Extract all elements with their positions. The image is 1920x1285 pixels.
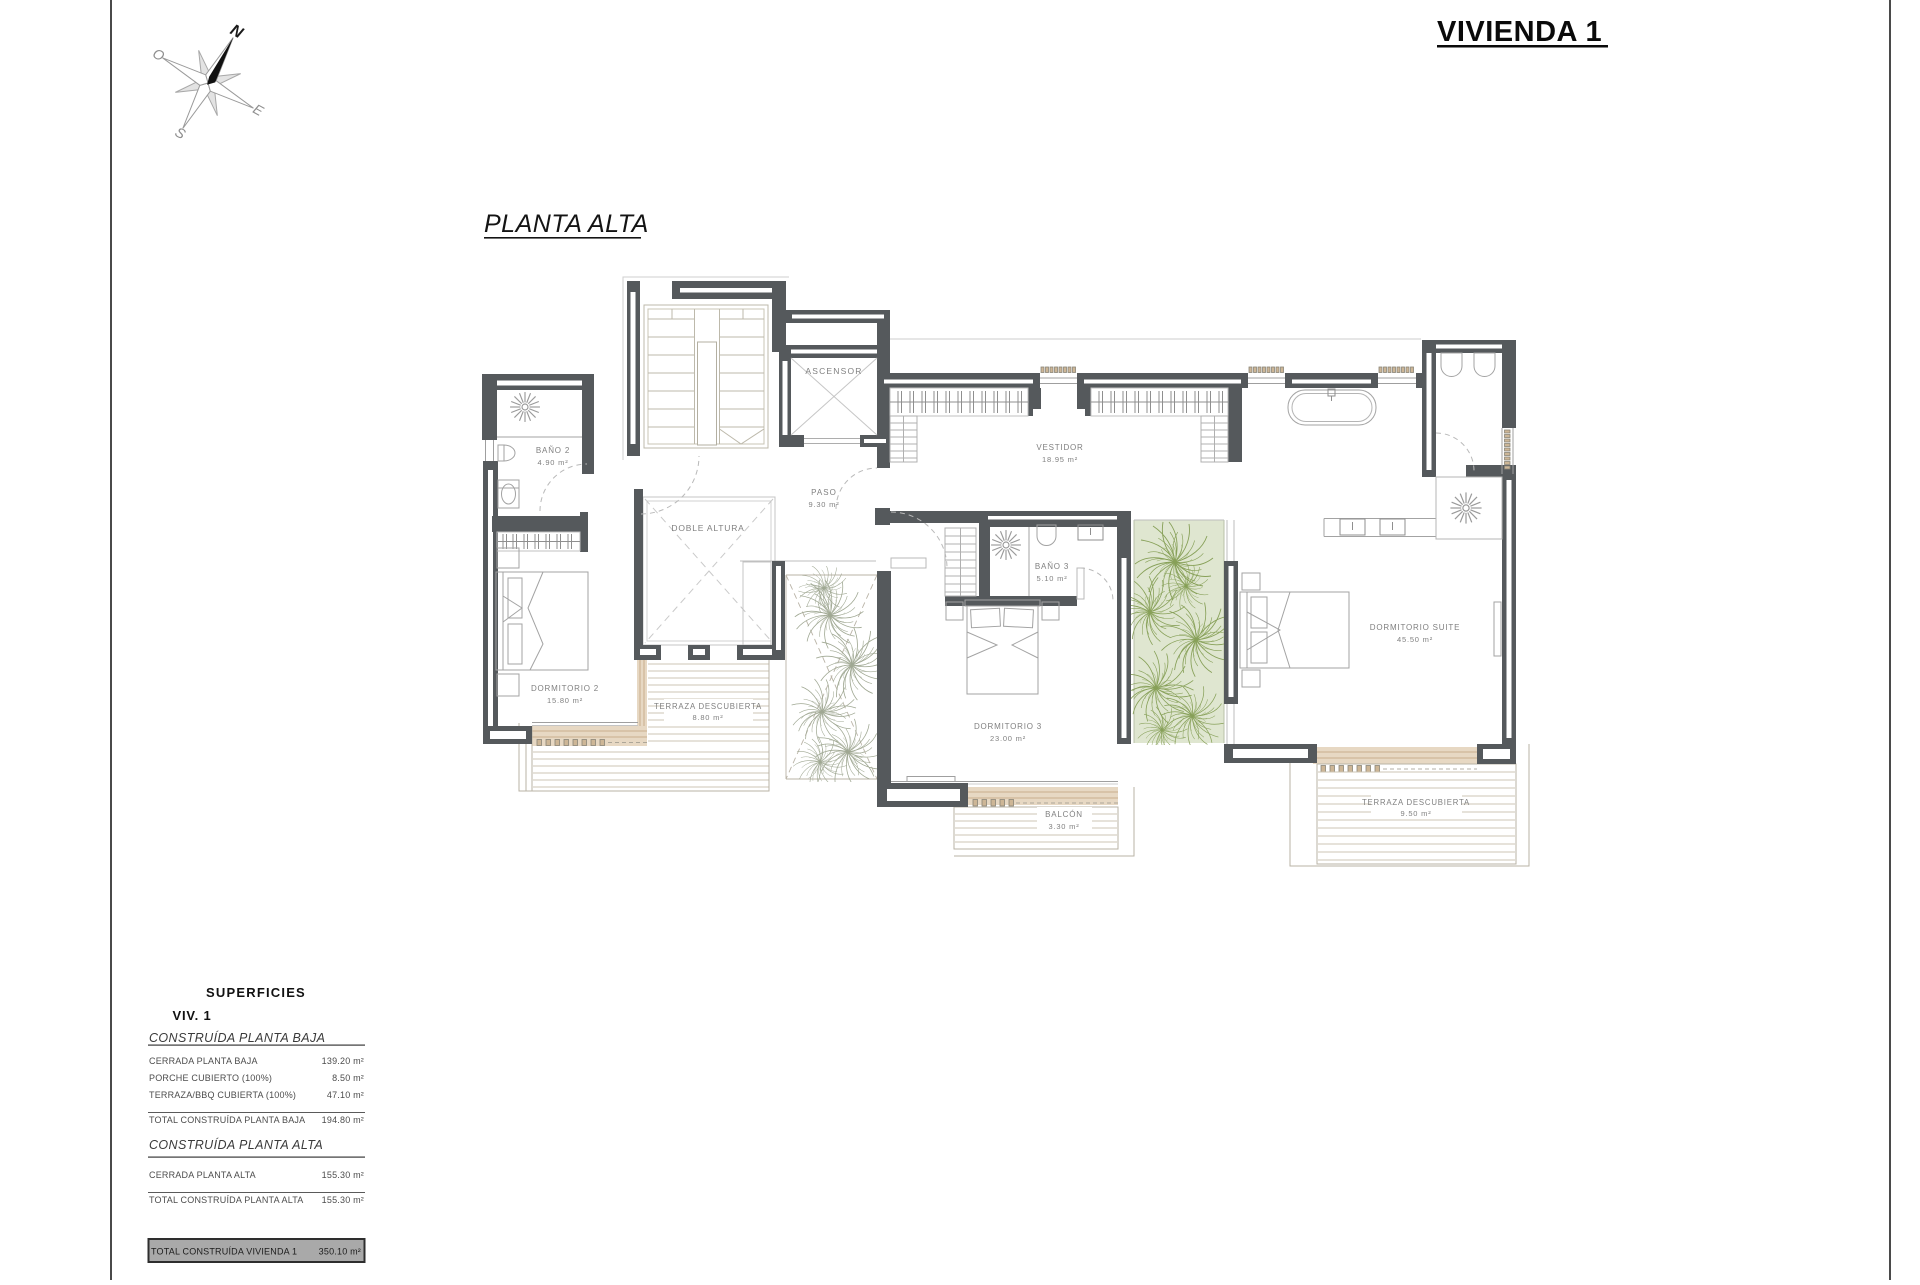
svg-text:5.10 m²: 5.10 m² bbox=[1036, 574, 1067, 583]
svg-text:DORMITORIO SUITE: DORMITORIO SUITE bbox=[1370, 623, 1460, 632]
svg-text:9.50 m²: 9.50 m² bbox=[1400, 809, 1431, 818]
svg-text:PLANTA ALTA: PLANTA ALTA bbox=[484, 210, 649, 238]
svg-text:18.95 m²: 18.95 m² bbox=[1042, 455, 1078, 464]
svg-text:TERRAZA DESCUBIERTA: TERRAZA DESCUBIERTA bbox=[1362, 798, 1470, 807]
svg-text:350.10 m²: 350.10 m² bbox=[319, 1247, 361, 1257]
svg-text:155.30 m²: 155.30 m² bbox=[322, 1170, 364, 1180]
svg-text:CONSTRUÍDA PLANTA ALTA: CONSTRUÍDA PLANTA ALTA bbox=[149, 1137, 323, 1152]
svg-text:4.90 m²: 4.90 m² bbox=[537, 458, 568, 467]
svg-text:DOBLE ALTURA: DOBLE ALTURA bbox=[671, 523, 744, 533]
svg-text:BAÑO 3: BAÑO 3 bbox=[1035, 562, 1069, 571]
svg-text:CERRADA PLANTA BAJA: CERRADA PLANTA BAJA bbox=[149, 1056, 258, 1066]
svg-text:3.30 m²: 3.30 m² bbox=[1048, 822, 1079, 831]
svg-text:DORMITORIO 2: DORMITORIO 2 bbox=[531, 684, 599, 693]
svg-text:155.30 m²: 155.30 m² bbox=[322, 1195, 364, 1205]
svg-text:BAÑO 2: BAÑO 2 bbox=[536, 446, 570, 455]
svg-text:TOTAL CONSTRUÍDA PLANTA BAJA: TOTAL CONSTRUÍDA PLANTA BAJA bbox=[149, 1115, 305, 1125]
svg-text:45.50 m²: 45.50 m² bbox=[1397, 635, 1433, 644]
svg-text:CERRADA PLANTA ALTA: CERRADA PLANTA ALTA bbox=[149, 1170, 256, 1180]
svg-text:47.10 m²: 47.10 m² bbox=[327, 1090, 364, 1100]
svg-text:ASCENSOR: ASCENSOR bbox=[805, 366, 862, 376]
svg-text:VIV. 1: VIV. 1 bbox=[172, 1008, 211, 1023]
svg-text:PORCHE CUBIERTO (100%): PORCHE CUBIERTO (100%) bbox=[149, 1073, 272, 1083]
svg-text:194.80 m²: 194.80 m² bbox=[322, 1115, 364, 1125]
svg-text:139.20 m²: 139.20 m² bbox=[322, 1056, 364, 1066]
svg-text:TOTAL CONSTRUÍDA PLANTA ALTA: TOTAL CONSTRUÍDA PLANTA ALTA bbox=[149, 1195, 303, 1205]
svg-text:TERRAZA DESCUBIERTA: TERRAZA DESCUBIERTA bbox=[654, 702, 762, 711]
svg-text:CONSTRUÍDA PLANTA BAJA: CONSTRUÍDA PLANTA BAJA bbox=[149, 1030, 325, 1045]
svg-text:15.80 m²: 15.80 m² bbox=[547, 696, 583, 705]
svg-text:8.50 m²: 8.50 m² bbox=[332, 1073, 364, 1083]
svg-text:8.80 m²: 8.80 m² bbox=[692, 713, 723, 722]
svg-text:VIVIENDA 1: VIVIENDA 1 bbox=[1437, 16, 1602, 48]
svg-text:BALCÓN: BALCÓN bbox=[1045, 810, 1083, 819]
svg-text:VESTIDOR: VESTIDOR bbox=[1036, 443, 1083, 452]
svg-text:DORMITORIO 3: DORMITORIO 3 bbox=[974, 722, 1042, 731]
svg-text:PASO: PASO bbox=[811, 488, 837, 497]
svg-text:9.30 m²: 9.30 m² bbox=[808, 500, 839, 509]
svg-text:SUPERFICIES: SUPERFICIES bbox=[206, 985, 306, 1000]
svg-text:TERRAZA/BBQ CUBIERTA (100%): TERRAZA/BBQ CUBIERTA (100%) bbox=[149, 1090, 296, 1100]
svg-text:23.00 m²: 23.00 m² bbox=[990, 734, 1026, 743]
svg-text:TOTAL CONSTRUÍDA VIVIENDA 1: TOTAL CONSTRUÍDA VIVIENDA 1 bbox=[151, 1247, 297, 1257]
